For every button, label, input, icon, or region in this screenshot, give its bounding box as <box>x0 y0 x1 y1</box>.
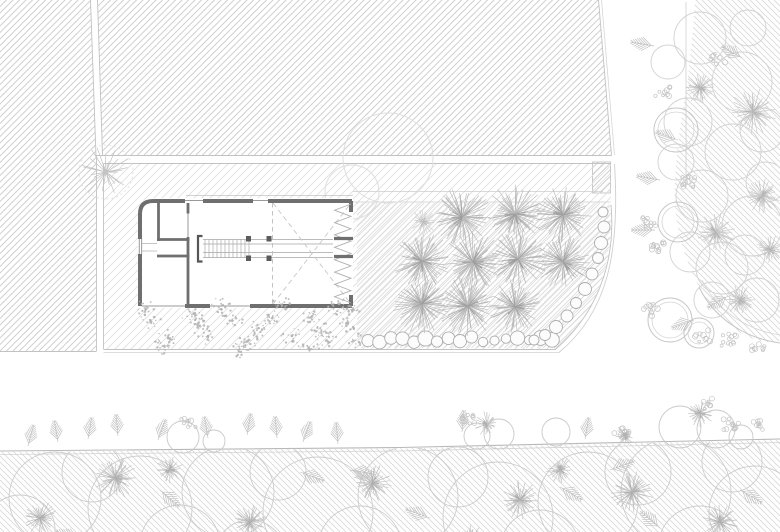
palm-frond <box>111 414 124 436</box>
building-plan <box>138 196 353 309</box>
building-footprint <box>138 198 353 308</box>
palm-frond <box>243 413 256 435</box>
palm-frond <box>581 417 594 439</box>
berry-cluster <box>720 332 738 347</box>
palm-frond <box>270 416 283 438</box>
palm-frond <box>25 424 37 446</box>
berry-cluster <box>642 302 661 318</box>
palm-bed <box>357 203 610 348</box>
berry-cluster <box>180 416 197 428</box>
berry-cluster <box>654 85 672 99</box>
berry-cluster <box>649 240 666 254</box>
palm-frond <box>631 223 655 237</box>
palm-frond <box>630 37 654 51</box>
field-top-left <box>0 0 96 352</box>
palm-frond <box>200 416 213 438</box>
site-plan-drawing <box>0 0 780 532</box>
site-plan <box>0 0 780 532</box>
palm-frond <box>301 421 313 442</box>
palm-frond <box>331 422 344 444</box>
berry-cluster <box>750 342 767 353</box>
berry-cluster <box>721 417 740 432</box>
tree-canopy-double <box>648 298 692 342</box>
field-top <box>98 0 612 156</box>
berry-cluster <box>641 216 658 229</box>
palm-frond <box>50 420 63 442</box>
berry-cluster <box>751 418 764 431</box>
tree-canopy <box>542 418 570 446</box>
palm-frond <box>655 129 678 142</box>
palm-frond <box>84 417 97 439</box>
palm-frond <box>156 419 168 440</box>
tree-canopy <box>651 45 685 79</box>
ground-fields <box>0 0 780 532</box>
palm-frond <box>636 171 660 185</box>
